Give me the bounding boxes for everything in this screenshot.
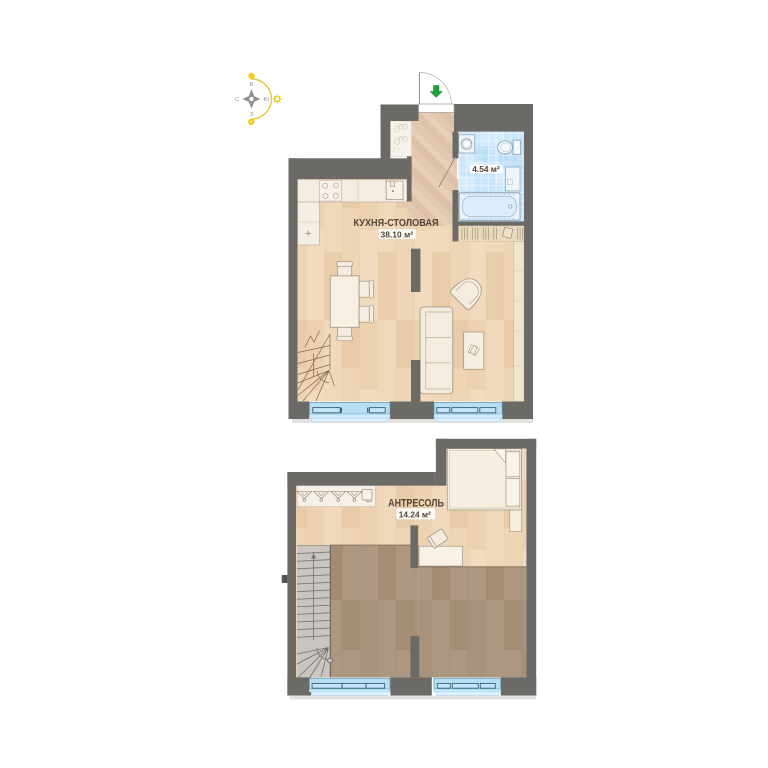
svg-text:Ю: Ю [264,97,270,103]
svg-text:В: В [250,82,254,88]
svg-text:АНТРЕСОЛЬ: АНТРЕСОЛЬ [388,497,444,509]
svg-text:С: С [235,97,239,103]
svg-text:КУХНЯ-СТОЛОВАЯ: КУХНЯ-СТОЛОВАЯ [354,218,439,229]
svg-text:4.54 м²: 4.54 м² [472,164,500,174]
svg-text:14.24 м²: 14.24 м² [399,509,431,519]
svg-text:38.10 м²: 38.10 м² [381,229,414,239]
